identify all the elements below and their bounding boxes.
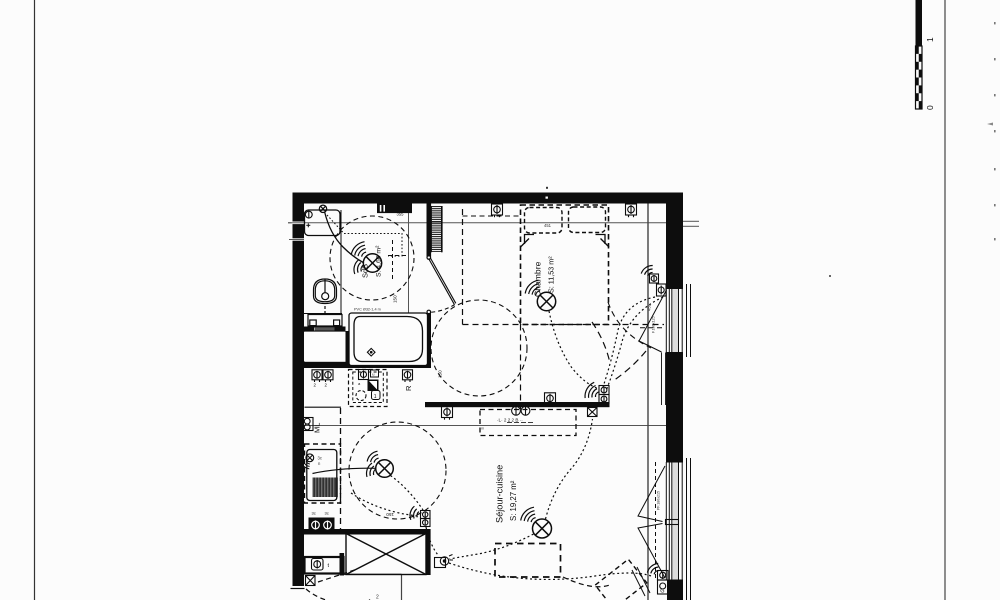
svg-text:3c: 3c xyxy=(325,511,329,516)
svg-text:355: 355 xyxy=(397,212,405,217)
svg-text:2: 2 xyxy=(376,595,379,600)
svg-text:Chambre: Chambre xyxy=(533,261,543,297)
svg-text:1: 1 xyxy=(925,37,935,42)
svg-text:a: a xyxy=(358,381,361,386)
svg-text:R: R xyxy=(404,385,413,391)
svg-text:Séjour-cuisine: Séjour-cuisine xyxy=(495,465,505,523)
svg-text:150: 150 xyxy=(438,370,443,378)
svg-text:150: 150 xyxy=(386,512,394,517)
svg-text:S: 19,27 m²: S: 19,27 m² xyxy=(509,480,518,521)
svg-text:S: 4,60 m²: S: 4,60 m² xyxy=(376,245,383,277)
svg-text:t: t xyxy=(328,563,330,569)
svg-text:SdB: SdB xyxy=(361,264,370,278)
svg-text:·L· 2 2 2 B ··: ·L· 2 2 2 B ·· xyxy=(497,418,523,423)
svg-text:3c: 3c xyxy=(312,511,316,516)
svg-text:m: m xyxy=(481,427,484,431)
svg-text:451: 451 xyxy=(544,223,552,228)
svg-text:u: u xyxy=(372,372,374,377)
svg-text:PF.180x215: PF.180x215 xyxy=(657,491,661,510)
svg-text:n: n xyxy=(318,461,321,466)
svg-text:0: 0 xyxy=(925,105,935,110)
svg-text:PVC Ø32-1,4 m: PVC Ø32-1,4 m xyxy=(354,308,381,312)
svg-text:3c: 3c xyxy=(318,456,322,461)
svg-text:2: 2 xyxy=(325,383,328,388)
svg-text:2: 2 xyxy=(314,383,317,388)
svg-text:ML: ML xyxy=(313,423,322,433)
svg-text:S: 11,53 m²: S: 11,53 m² xyxy=(547,256,556,293)
svg-text:150: 150 xyxy=(393,295,398,303)
svg-text:1: 1 xyxy=(374,394,377,400)
svg-text:G: G xyxy=(660,589,664,595)
